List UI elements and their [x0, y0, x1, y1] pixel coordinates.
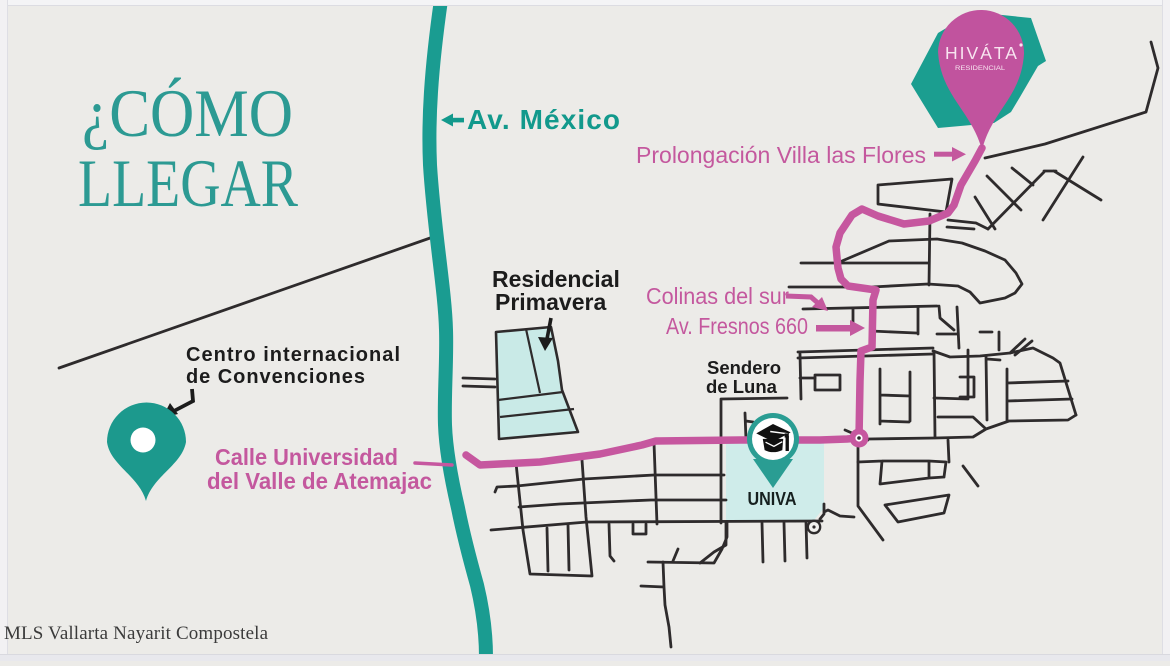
svg-text:Centro internacional: Centro internacional — [186, 344, 400, 366]
svg-text:RESIDENCIAL: RESIDENCIAL — [955, 65, 1005, 72]
svg-text:LLEGAR: LLEGAR — [78, 145, 299, 221]
svg-text:Av. México: Av. México — [467, 104, 620, 135]
svg-text:HIVÁTA: HIVÁTA — [945, 43, 1019, 63]
svg-text:Calle Universidad: Calle Universidad — [215, 444, 398, 470]
svg-text:Sendero: Sendero — [707, 357, 781, 378]
svg-text:de Convenciones: de Convenciones — [186, 366, 365, 388]
svg-text:de Luna: de Luna — [706, 376, 778, 397]
svg-text:Prolongación Villa las Flores: Prolongación Villa las Flores — [636, 142, 926, 168]
svg-text:Primavera: Primavera — [495, 289, 606, 315]
svg-text:MLS Vallarta Nayarit Compostel: MLS Vallarta Nayarit Compostela — [4, 623, 269, 644]
svg-text:¿CÓMO: ¿CÓMO — [82, 75, 293, 151]
svg-text:del Valle de Atemajac: del Valle de Atemajac — [207, 468, 432, 494]
svg-text:Av. Fresnos 660: Av. Fresnos 660 — [666, 313, 808, 339]
svg-text:Colinas del sur: Colinas del sur — [646, 283, 789, 309]
svg-text:UNIVA: UNIVA — [748, 489, 797, 509]
